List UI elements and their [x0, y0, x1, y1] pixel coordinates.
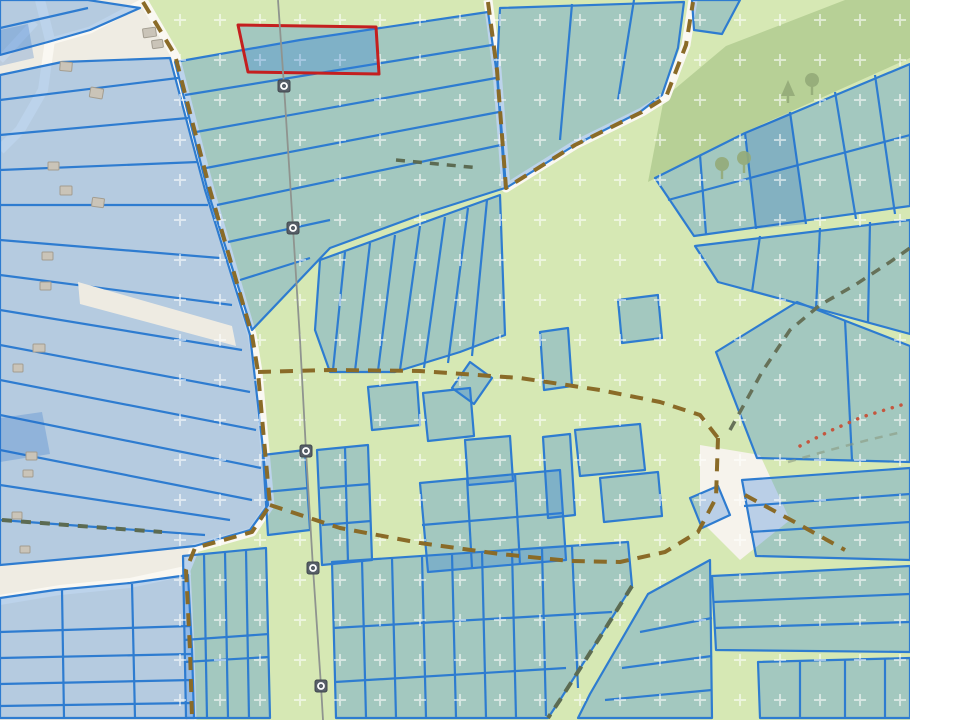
building-footprint — [91, 197, 104, 208]
building-footprint — [40, 282, 51, 290]
building-footprint — [26, 452, 37, 460]
map-polygon — [0, 412, 50, 462]
orchard-pattern-overlay — [150, 0, 910, 720]
screenshot-root — [0, 0, 960, 720]
layer-orchard-pattern — [150, 0, 910, 720]
building-footprint — [12, 512, 22, 519]
building-footprint — [151, 39, 163, 48]
highlighted-parcel-outline — [238, 25, 379, 74]
power-pylon-icon — [315, 680, 327, 692]
building-footprint — [89, 87, 104, 99]
layer-highlighted-parcel — [238, 25, 379, 74]
building-footprint — [20, 546, 30, 553]
building-footprint — [13, 364, 23, 372]
building-footprint — [33, 344, 45, 352]
power-pylon-icon — [307, 562, 319, 574]
power-pylon-icon — [278, 80, 290, 92]
building-footprint — [60, 186, 72, 195]
map-canvas[interactable] — [0, 0, 910, 720]
power-pylon-icon — [300, 445, 312, 457]
building-footprint — [42, 252, 53, 260]
right-margin — [910, 0, 960, 720]
building-footprint — [142, 27, 156, 38]
map-viewport[interactable] — [0, 0, 910, 720]
power-pylon-icon — [287, 222, 299, 234]
building-footprint — [60, 61, 73, 71]
building-footprint — [48, 162, 59, 170]
building-footprint — [23, 470, 33, 477]
